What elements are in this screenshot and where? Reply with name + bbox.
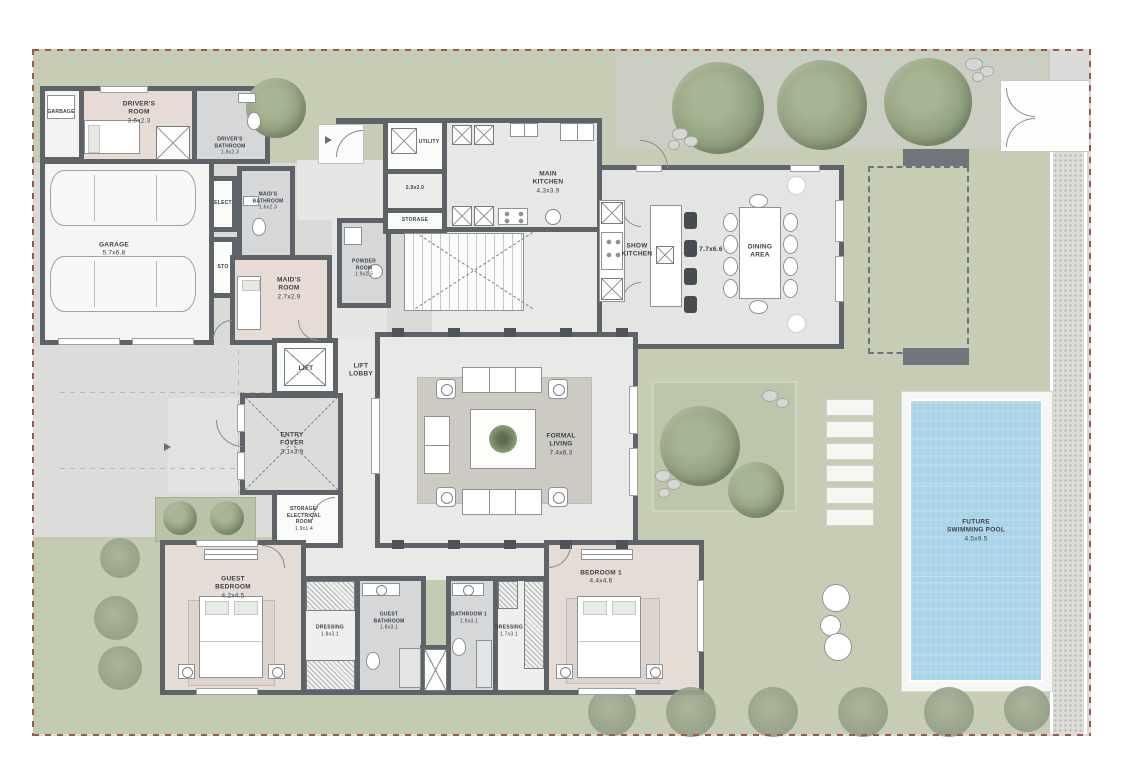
label-pool: FUTURE SWIMMING POOL4.5x9.5	[947, 518, 1005, 543]
label-sto: STO	[218, 264, 229, 271]
bar-stool	[684, 240, 697, 257]
stepping-slat	[826, 421, 874, 438]
tree	[163, 501, 197, 535]
pergola-pad	[903, 149, 969, 166]
pilaster	[504, 328, 516, 337]
bar-stool	[684, 268, 697, 285]
garage-door-opening	[132, 338, 194, 345]
pilaster	[616, 328, 628, 337]
window	[196, 688, 258, 695]
label-show-kitchen: SHOW KITCHEN	[622, 243, 653, 260]
dining-chair	[749, 194, 768, 208]
ceiling-feature	[787, 176, 806, 195]
label-dressing-guest: DRESSING1.8x3.1	[316, 625, 344, 638]
entry-arrow	[325, 136, 332, 144]
stepping-slat	[826, 399, 874, 416]
door-opening	[790, 165, 820, 172]
dining-chair	[749, 300, 768, 314]
label-powder-room: POWDER ROOM1.9x2.5	[352, 258, 376, 278]
pilaster	[392, 328, 404, 337]
wardrobe	[498, 581, 518, 609]
tree	[210, 501, 244, 535]
gravel-path	[1050, 148, 1087, 734]
dining-chair	[783, 235, 798, 254]
sink	[344, 227, 362, 245]
sink	[238, 93, 256, 103]
garage-door-opening	[58, 338, 120, 345]
show-kitchen-cabinet	[601, 278, 623, 300]
dining-chair	[723, 279, 738, 298]
armchair	[436, 379, 456, 399]
car	[50, 170, 196, 226]
stepping-slat	[826, 487, 874, 504]
stepping-slat	[826, 443, 874, 460]
shrub	[1004, 686, 1050, 732]
pilaster	[448, 540, 460, 549]
dining-chair	[723, 213, 738, 232]
kitchen-cabinet	[452, 206, 472, 226]
site-boundary	[32, 49, 34, 736]
show-kitchen-hob	[601, 232, 623, 270]
label-drivers-bathroom: DRIVER'S BATHROOM1.8x2.3	[214, 136, 245, 156]
label-maids-room: MAID'S ROOM2.7x2.9	[277, 276, 301, 301]
shrub	[748, 687, 798, 737]
dining-chair	[783, 257, 798, 276]
room-maids-bathroom	[237, 166, 295, 260]
label-formal-living: FORMAL LIVING7.4x6.3	[546, 432, 575, 457]
bar-stool	[684, 212, 697, 229]
entry-arrow	[164, 443, 171, 451]
wardrobe	[306, 581, 355, 611]
window	[835, 256, 844, 302]
label-bathroom-1: BATHROOM 11.9x3.1	[451, 612, 487, 625]
pilaster	[616, 540, 628, 549]
garbage-shelf	[47, 95, 75, 119]
window	[697, 580, 704, 652]
wardrobe	[524, 581, 544, 669]
window	[835, 200, 844, 242]
console	[581, 549, 633, 560]
oven	[545, 209, 561, 225]
kitchen-cabinet	[452, 125, 472, 145]
service-shaft	[424, 649, 447, 691]
label-lift-lobby: LIFT LOBBY	[349, 363, 373, 380]
lamp	[560, 667, 571, 678]
shrub	[100, 538, 140, 578]
toilet	[452, 638, 466, 656]
lamp	[182, 667, 193, 678]
stepping-slat	[826, 509, 874, 526]
label-utility: UTILITY	[419, 139, 440, 146]
wall-segment	[336, 118, 386, 124]
console	[204, 549, 258, 560]
outdoor-chair	[824, 633, 852, 661]
pilaster	[392, 540, 404, 549]
floor-plan-canvas: GARBAGE DRIVER'S ROOM3.6x2.3 DRIVER'S BA…	[0, 0, 1128, 780]
double-bed	[577, 596, 641, 678]
window	[629, 386, 638, 434]
double-bed	[199, 596, 263, 678]
label-storage: STORAGE	[402, 217, 428, 224]
label-maids-bathroom: MAID'S BATHROOM1.6x2.3	[252, 191, 283, 211]
sofa	[462, 367, 542, 393]
basin	[376, 585, 387, 596]
washing-machine	[391, 128, 417, 154]
label-entry-foyer: ENTRY FOYER3.1x3.9	[280, 431, 304, 456]
shrub	[98, 646, 142, 690]
armchair	[436, 487, 456, 507]
tree	[728, 462, 784, 518]
pilaster	[504, 540, 516, 549]
entry-walkway	[168, 398, 238, 493]
armchair	[548, 487, 568, 507]
label-dining-area: DINING AREA	[748, 244, 772, 261]
window	[100, 86, 148, 93]
kitchen-cabinet	[474, 125, 494, 145]
dining-chair	[783, 279, 798, 298]
pilaster	[560, 328, 572, 337]
toilet	[252, 218, 266, 236]
dining-chair	[783, 213, 798, 232]
kitchen-sink	[510, 123, 538, 137]
label-garbage: GARBAGE	[47, 109, 74, 116]
shrub	[588, 688, 636, 736]
single-bed	[237, 276, 261, 330]
shower	[399, 648, 421, 688]
site-boundary	[33, 734, 1091, 736]
dining-chair	[723, 235, 738, 254]
pergola-pad	[903, 348, 969, 365]
range-cooker	[498, 208, 528, 225]
window	[196, 540, 258, 547]
basin	[463, 585, 474, 596]
plant	[489, 425, 517, 453]
label-elect: ELECT	[214, 200, 232, 207]
label-storage-electrical: STORAGE/ ELECTRICAL ROOM1.9x1.4	[287, 506, 321, 532]
island-sink	[656, 246, 674, 264]
pilaster	[448, 328, 460, 337]
label-bedroom-1: BEDROOM 14.4x4.6	[580, 570, 622, 587]
lamp	[650, 667, 661, 678]
fridge	[560, 123, 594, 141]
shrub	[94, 596, 138, 640]
shower	[476, 640, 492, 688]
label-guest-bedroom: GUEST BEDROOM4.2x4.5	[215, 575, 251, 600]
pool-lane-line	[912, 486, 1040, 487]
site-boundary	[33, 49, 1091, 51]
shrub	[838, 687, 888, 737]
shrub	[666, 687, 716, 737]
bar-stool	[684, 296, 697, 313]
wardrobe	[306, 660, 355, 690]
label-main-kitchen: MAIN KITCHEN4.3x3.9	[533, 170, 564, 195]
window	[578, 688, 636, 695]
window	[237, 452, 245, 480]
label-guest-bathroom: GUEST BATHROOM1.8x3.1	[373, 611, 404, 631]
car	[50, 256, 196, 312]
shrub	[924, 687, 974, 737]
show-kitchen-cabinet	[601, 202, 623, 224]
toilet	[247, 112, 261, 130]
staircase	[404, 233, 524, 311]
toilet	[366, 652, 380, 670]
site-boundary	[1089, 49, 1091, 736]
window	[371, 398, 380, 474]
window	[629, 448, 638, 496]
dining-chair	[723, 257, 738, 276]
sofa	[462, 489, 542, 515]
sofa	[424, 416, 450, 474]
ceiling-feature	[787, 314, 806, 333]
label-dressing-1: DRESSING1.7x3.1	[495, 625, 523, 638]
closet	[156, 126, 190, 160]
pergola-footprint	[868, 166, 969, 354]
kitchen-cabinet	[474, 206, 494, 226]
tree	[660, 406, 740, 486]
label-corridor: 2.0x2.0	[406, 185, 424, 192]
label-drivers-room: DRIVER'S ROOM3.6x2.3	[123, 100, 155, 125]
label-garage: GARAGE5.7x6.8	[99, 242, 129, 259]
label-dining-dims: 7.7x6.6	[699, 246, 722, 254]
lamp	[272, 667, 283, 678]
label-lift: LIFT	[299, 365, 314, 373]
stepping-slat	[826, 465, 874, 482]
armchair	[548, 379, 568, 399]
outdoor-chair	[822, 584, 850, 612]
pool-lane-line	[912, 576, 1040, 577]
tree	[777, 60, 867, 150]
tree	[884, 58, 972, 146]
